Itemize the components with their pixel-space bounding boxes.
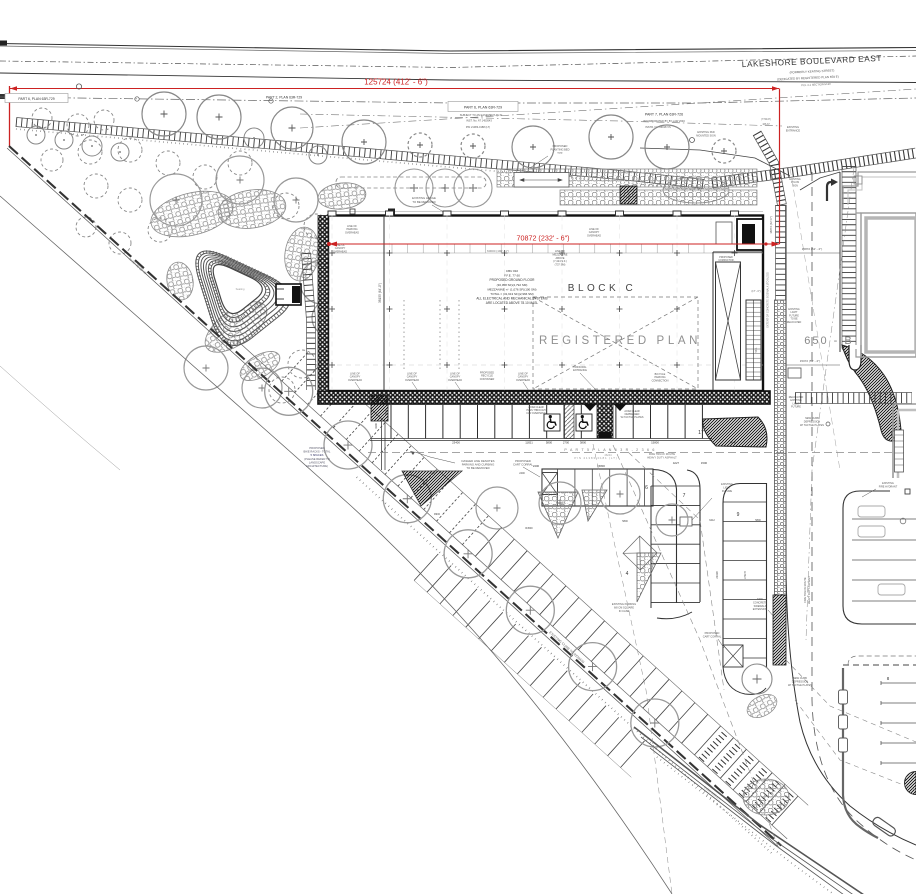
svg-text:(PLEASE REFER TO: (PLEASE REFER TO <box>304 457 330 461</box>
svg-text:TO BE REMOVED: TO BE REMOVED <box>466 466 489 470</box>
svg-text:RELOCATED: RELOCATED <box>787 321 802 324</box>
svg-text:(17' - 0"): (17' - 0") <box>751 290 760 293</box>
svg-text:EXISTING: EXISTING <box>787 125 799 129</box>
svg-text:CAR OVERHANG: CAR OVERHANG <box>526 412 546 415</box>
svg-text:6: 6 <box>645 485 648 491</box>
svg-text:2.5M B: 2.5M B <box>744 571 747 579</box>
svg-text:9: 9 <box>737 512 740 518</box>
svg-text:6000: 6000 <box>384 409 388 415</box>
svg-text:TO BE REMOVED: TO BE REMOVED <box>412 200 435 204</box>
svg-text:EXISTING PARKING: EXISTING PARKING <box>612 602 636 606</box>
svg-text:5 SPACES: 5 SPACES <box>311 453 324 457</box>
svg-text:(30,058 SF)(2,792 SM): (30,058 SF)(2,792 SM) <box>497 283 528 287</box>
svg-text:MOUNTED SIGN: MOUNTED SIGN <box>696 135 716 138</box>
svg-text:R900: R900 <box>434 513 441 516</box>
svg-text:(774447): (774447) <box>761 118 771 121</box>
svg-text:Seating: Seating <box>236 287 245 291</box>
svg-text:ENTRANCE: ENTRANCE <box>786 129 801 133</box>
svg-text:PART 6, PLAN 63R-729: PART 6, PLAN 63R-729 <box>18 97 54 101</box>
svg-text:5800: 5800 <box>755 519 761 522</box>
svg-text:F.F.E. 77.60: F.F.E. 77.60 <box>504 274 520 278</box>
svg-text:PROPOSED GROUND FLOOR: PROPOSED GROUND FLOOR <box>490 278 536 282</box>
svg-text:PLANTING BED: PLANTING BED <box>550 148 569 152</box>
svg-text:OVERHEAD: OVERHEAD <box>516 379 530 382</box>
svg-text:BIKE RACKS - TOTAL: BIKE RACKS - TOTAL <box>304 450 331 454</box>
svg-text:W/ TACTILE PLATES: W/ TACTILE PLATES <box>800 424 824 427</box>
svg-text:COMPACTOR: COMPACTOR <box>718 259 734 262</box>
svg-text:EXTENT OF CONCRETE SIDEWALK (T: EXTENT OF CONCRETE SIDEWALK (TO BLDG) <box>767 272 770 328</box>
svg-text:MEZZANINE +/- (1,076 SF)(100 S: MEZZANINE +/- (1,076 SF)(100 SM) <box>487 287 536 291</box>
svg-text:BLOCK C: BLOCK C <box>568 283 636 294</box>
svg-text:HEAVY DUTY ASPHALT: HEAVY DUTY ASPHALT <box>647 456 677 460</box>
svg-text:23400: 23400 <box>452 441 460 445</box>
svg-text:15072 (52' - 2"): 15072 (52' - 2") <box>800 359 820 363</box>
svg-text:2700: 2700 <box>563 441 570 445</box>
svg-text:4100: 4100 <box>374 423 378 429</box>
svg-text:ENTRANCE: ENTRANCE <box>573 369 587 372</box>
svg-text:PART 2, PLAN 63R-729: PART 2, PLAN 63R-729 <box>266 96 302 100</box>
svg-text:4: 4 <box>626 571 629 577</box>
svg-text:CART CORRAL: CART CORRAL <box>703 634 722 638</box>
svg-text:PROPOSED: PROPOSED <box>309 446 324 450</box>
svg-text:PART 6, PLAN 63R-729: PART 6, PLAN 63R-729 <box>464 106 502 110</box>
svg-text:IN CASE: IN CASE <box>619 609 630 613</box>
svg-text:2400: 2400 <box>533 464 540 468</box>
svg-text:MEZZANINE: MEZZANINE <box>553 252 568 256</box>
svg-text:15800: 15800 <box>651 441 659 445</box>
svg-text:PIN 21383-0188 (LT): PIN 21383-0188 (LT) <box>466 125 490 129</box>
svg-text:60000 (196'-11"): 60000 (196'-11") <box>487 249 509 253</box>
svg-text:2400: 2400 <box>430 472 436 475</box>
svg-text:LANDSCAPE: LANDSCAPE <box>309 460 325 464</box>
svg-text:18872 (62'-0"): 18872 (62'-0") <box>769 216 773 234</box>
svg-text:15872 (52' - 2"): 15872 (52' - 2") <box>802 247 822 251</box>
svg-text:FIRE TRUCK ROUTE: FIRE TRUCK ROUTE <box>649 452 675 456</box>
svg-text:CONNECTION: CONNECTION <box>652 379 669 382</box>
svg-text:REGISTERED PLAN: REGISTERED PLAN <box>539 335 701 347</box>
svg-text:PROPOSED: PROPOSED <box>553 144 568 148</box>
svg-text:OVERHEAD: OVERHEAD <box>448 379 462 382</box>
svg-text:CBU #10: CBU #10 <box>506 269 519 273</box>
svg-text:5800: 5800 <box>622 520 628 523</box>
svg-text:W/ TACTILE PLATES: W/ TACTILE PLATES <box>788 684 812 687</box>
svg-text:TYP.: TYP. <box>557 151 563 155</box>
svg-text:P A R T 5 P L A N 6 3: P A R T 5 P L A N 6 3 R - 2 3 6 6 <box>564 448 655 452</box>
svg-text:OVERHEAD: OVERHEAD <box>587 234 601 237</box>
svg-text:CONTAINER: CONTAINER <box>480 378 495 381</box>
svg-text:R4500: R4500 <box>525 527 533 530</box>
svg-text:4227: 4227 <box>673 461 680 465</box>
svg-text:CART CORRAL: CART CORRAL <box>513 463 533 467</box>
svg-text:ARCHITECTURE): ARCHITECTURE) <box>306 464 328 468</box>
svg-text:2400: 2400 <box>519 472 525 475</box>
svg-text:11821: 11821 <box>525 441 533 445</box>
svg-text:166.37: 166.37 <box>762 123 770 126</box>
svg-text:INCORPORATED BY BY-LAW 2046: INCORPORATED BY BY-LAW 2046 <box>643 119 685 123</box>
svg-text:5511: 5511 <box>755 347 758 353</box>
svg-text:17: 17 <box>698 430 704 436</box>
svg-text:3800: 3800 <box>580 441 587 445</box>
svg-text:(737 SM): (737 SM) <box>555 263 566 267</box>
svg-text:ARE LOCATED ABOVE 78.10 MASL: ARE LOCATED ABOVE 78.10 MASL <box>486 301 539 305</box>
svg-text:FIRE TRUCK ROUTE: FIRE TRUCK ROUTE <box>803 577 807 603</box>
svg-text:70872 (232' - 6"): 70872 (232' - 6") <box>516 234 569 243</box>
svg-text:5800: 5800 <box>546 441 553 445</box>
svg-text:TOTAL = (31,913 SF)(2,966 SM): TOTAL = (31,913 SF)(2,966 SM) <box>490 292 533 296</box>
svg-text:6412: 6412 <box>709 519 715 522</box>
svg-text:EXTENSION: EXTENSION <box>753 608 768 611</box>
svg-text:15800: 15800 <box>597 464 605 468</box>
svg-text:1500: 1500 <box>701 461 708 465</box>
svg-text:LINE OF: LINE OF <box>555 249 566 253</box>
svg-text:OVERHEAD: OVERHEAD <box>345 231 359 234</box>
svg-text:6/8 CM SQUARE: 6/8 CM SQUARE <box>614 605 634 609</box>
svg-text:7: 7 <box>683 493 686 499</box>
svg-text:FIRE HYDRANT: FIRE HYDRANT <box>879 485 898 488</box>
svg-text:PROPOSED: PROPOSED <box>705 631 720 635</box>
svg-text:OVERHEAD: OVERHEAD <box>348 379 362 382</box>
svg-text:SUBJECT TO AN EASEMENT AS IN: SUBJECT TO AN EASEMENT AS IN <box>460 113 503 117</box>
svg-text:OVERHEAD: OVERHEAD <box>405 379 419 382</box>
svg-text:46244: 46244 <box>604 453 612 457</box>
svg-text:(7,424 S.F.): (7,424 S.F.) <box>553 259 567 263</box>
svg-text:INST. No. AT 1450543: INST. No. AT 1450543 <box>466 119 492 123</box>
svg-text:23418: 23418 <box>715 571 719 579</box>
svg-text:PART 7, PLAN 63R-726: PART 7, PLAN 63R-726 <box>645 113 683 117</box>
svg-text:38155 (64'-0"): 38155 (64'-0") <box>378 283 382 303</box>
svg-text:FUTURE: FUTURE <box>791 406 801 409</box>
svg-text:W/ TACTILE PLATES: W/ TACTILE PLATES <box>621 416 644 419</box>
svg-text:FUTURE: FUTURE <box>722 490 732 493</box>
svg-text:650 - B: 650 - B <box>804 335 853 347</box>
svg-text:OVERHEAD: OVERHEAD <box>333 250 347 253</box>
svg-text:125724 (412' - 6"): 125724 (412' - 6") <box>364 78 428 87</box>
svg-text:ABOVE: ABOVE <box>556 256 565 260</box>
svg-text:ALL ELECTRICAL AND MECHANICAL: ALL ELECTRICAL AND MECHANICAL SYSTEMS <box>476 297 547 301</box>
